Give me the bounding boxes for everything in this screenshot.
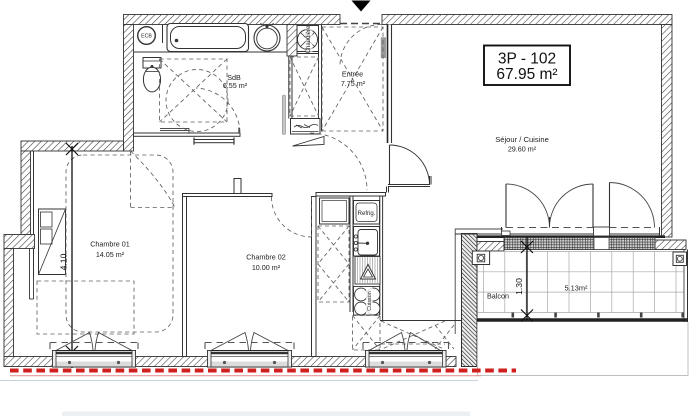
svg-text:10.00 m²: 10.00 m² [252, 263, 281, 272]
svg-text:Chaudière: Chaudière [306, 25, 312, 53]
svg-text:67.95 m²: 67.95 m² [496, 66, 557, 83]
svg-text:7.75 m²: 7.75 m² [341, 79, 366, 88]
svg-text:Séjour / Cuisine: Séjour / Cuisine [495, 135, 549, 144]
svg-text:ECB: ECB [141, 34, 152, 40]
svg-text:Entrée: Entrée [342, 70, 363, 79]
svg-text:29.60 m²: 29.60 m² [508, 145, 537, 154]
svg-text:Chambre 01: Chambre 01 [90, 240, 130, 249]
svg-text:Refrig.: Refrig. [358, 211, 376, 217]
svg-text:Cuisson: Cuisson [367, 291, 373, 310]
svg-text:1.30: 1.30 [514, 278, 524, 295]
svg-text:14.05 m²: 14.05 m² [96, 250, 125, 259]
svg-text:Chambre 02: Chambre 02 [246, 253, 286, 262]
svg-text:5.13m²: 5.13m² [564, 284, 588, 293]
svg-text:3P - 102: 3P - 102 [498, 51, 556, 68]
svg-text:4.10: 4.10 [59, 253, 69, 270]
svg-text:6.55 m²: 6.55 m² [223, 81, 248, 90]
svg-text:Balcon: Balcon [487, 292, 509, 301]
